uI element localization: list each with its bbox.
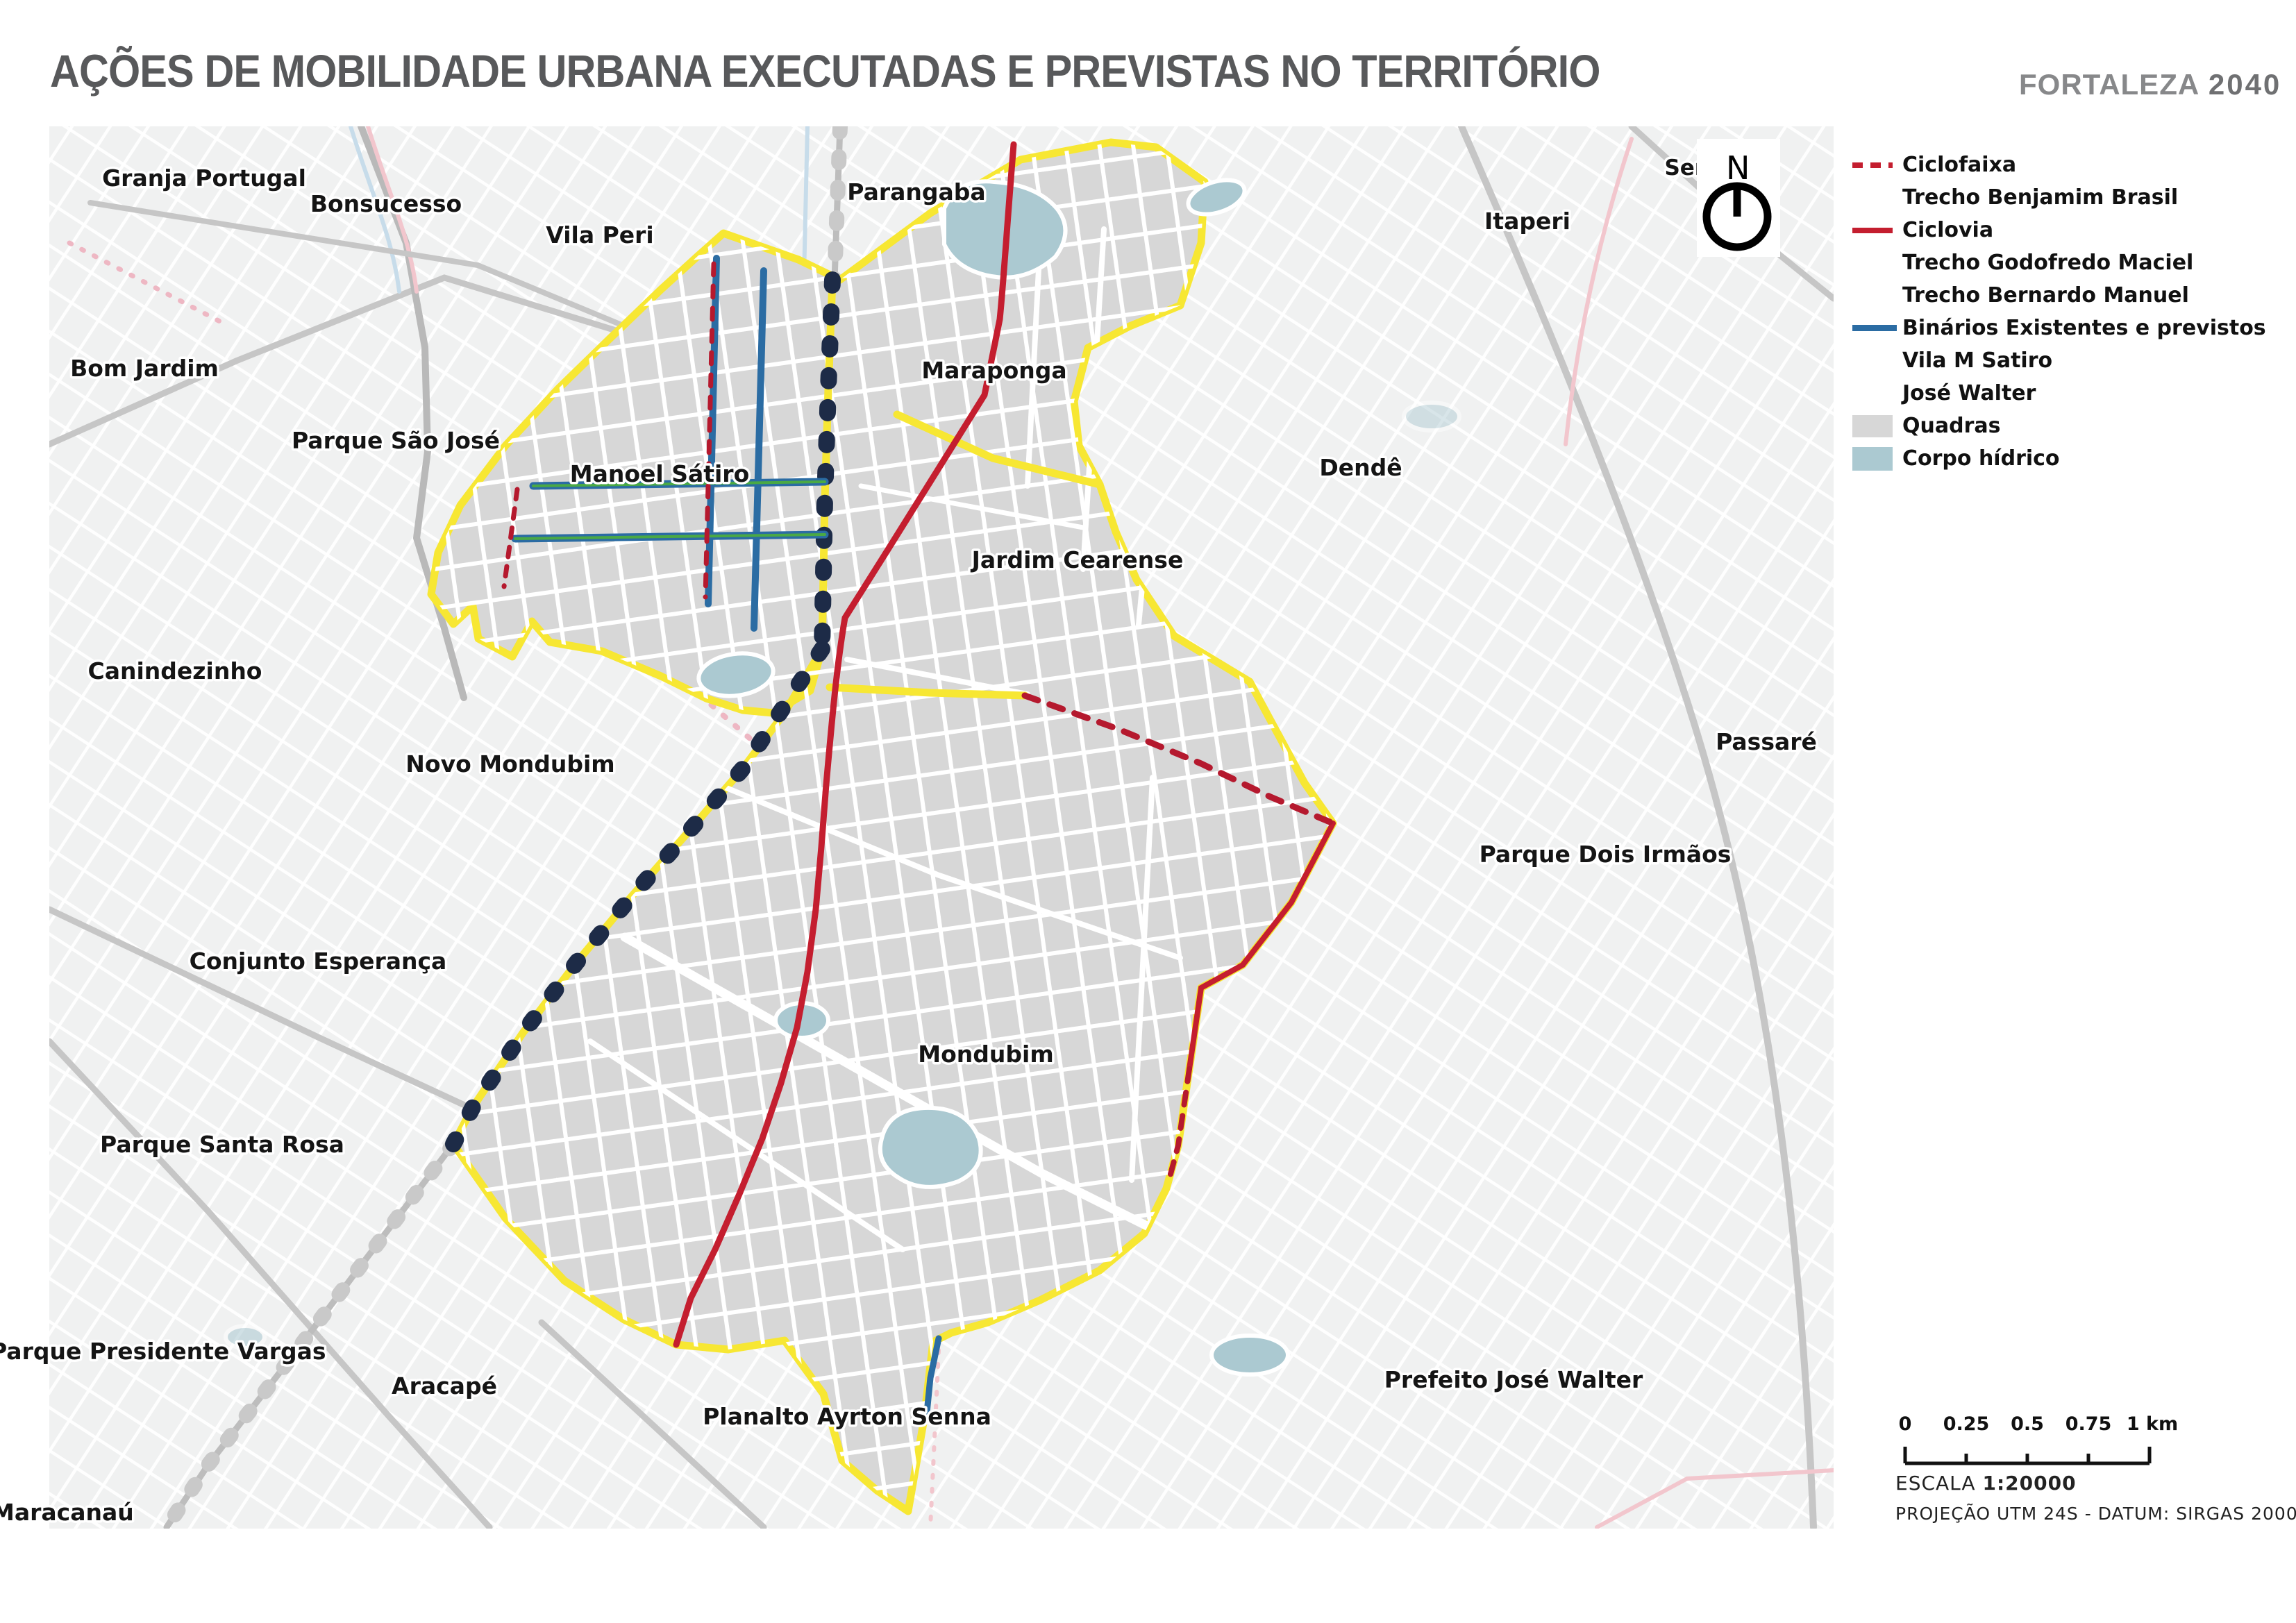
label-parque-santa-rosa: Parque Santa Rosa — [100, 1131, 344, 1158]
legend-label: Ciclovia — [1902, 218, 1993, 242]
label-passare: Passaré — [1716, 728, 1817, 755]
legend-item-corpo-hidrico: Corpo hídrico — [1852, 442, 2266, 475]
legend-item-ciclovia: Ciclovia — [1852, 214, 2266, 246]
quadras-swatch-icon — [1852, 415, 1902, 437]
label-itaperi: Itaperi — [1484, 208, 1570, 235]
label-aracape: Aracapé — [392, 1372, 497, 1399]
label-granja-portugal: Granja Portugal — [102, 165, 306, 192]
legend-item-trecho-bernardo-manuel: Trecho Bernardo Manuel — [1852, 279, 2266, 312]
legend-label: Binários Existentes e previstos — [1902, 316, 2266, 340]
corpo-hidrico-swatch-icon — [1852, 447, 1902, 471]
label-prefeito-jose-walter: Prefeito José Walter — [1384, 1366, 1643, 1393]
legend-item-binarios: Binários Existentes e previstos — [1852, 312, 2266, 344]
label-manoel-satiro: Manoel Sátiro — [570, 460, 750, 487]
label-parque-sao-jose: Parque São José — [292, 427, 500, 454]
legend-label: Ciclofaixa — [1902, 153, 2016, 177]
label-vila-peri: Vila Peri — [546, 221, 654, 249]
legend-item-trecho-benjamim-brasil: Trecho Benjamim Brasil — [1852, 181, 2266, 214]
label-parangaba: Parangaba — [847, 178, 985, 205]
legend-label: Trecho Bernardo Manuel — [1902, 283, 2189, 308]
brand-name: FORTALEZA — [2019, 68, 2199, 101]
map-base — [49, 125, 1834, 1529]
legend-label: Corpo hídrico — [1902, 446, 2060, 471]
legend-label: Vila M Satiro — [1902, 348, 2052, 373]
scale-tick-05: 0.5 — [2011, 1413, 2044, 1435]
legend-item-vila-m-satiro: Vila M Satiro — [1852, 344, 2266, 377]
scale-tick-025: 0.25 — [1943, 1413, 1990, 1435]
brand-year: 2040 — [2209, 68, 2281, 101]
scale-tick-0: 0 — [1899, 1413, 1912, 1435]
legend-label: Quadras — [1902, 414, 2000, 438]
label-planalto-ayrton-senna: Planalto Ayrton Senna — [703, 1403, 991, 1430]
legend-label: Trecho Benjamim Brasil — [1902, 185, 2178, 210]
projection-text: PROJEÇÃO UTM 24S - DATUM: SIRGAS 2000 — [1895, 1504, 2296, 1524]
legend-item-ciclofaixa: Ciclofaixa — [1852, 149, 2266, 181]
label-bom-jardim: Bom Jardim — [70, 355, 219, 382]
label-parque-dois-irmaos: Parque Dois Irmãos — [1480, 841, 1732, 868]
label-novo-mondubim: Novo Mondubim — [405, 750, 614, 777]
map-sheet: Granja Portugal Bonsucesso Vila Peri Par… — [0, 0, 2296, 1623]
label-dende: Dendê — [1319, 454, 1402, 481]
ciclofaixa-dashed-line-icon — [1852, 162, 1902, 168]
legend-item-jose-walter: José Walter — [1852, 377, 2266, 410]
brand-logo: FORTALEZA 2040 — [2019, 68, 2281, 101]
legend-label: José Walter — [1902, 381, 2036, 405]
scale-tick-1km: 1 km — [2127, 1413, 2178, 1435]
scale-tick-075: 0.75 — [2065, 1413, 2112, 1435]
label-conjunto-esperanca: Conjunto Esperança — [190, 948, 447, 975]
legend-item-trecho-godofredo-maciel: Trecho Godofredo Maciel — [1852, 246, 2266, 279]
legend-label: Trecho Godofredo Maciel — [1902, 251, 2193, 275]
label-parque-presidente-vargas: Parque Presidente Vargas — [0, 1338, 326, 1365]
north-letter: N — [1726, 149, 1750, 187]
binarios-line-icon — [1852, 325, 1902, 331]
north-compass: N — [1697, 139, 1780, 257]
escala-label: ESCALA — [1895, 1472, 1976, 1495]
escala-value: 1:20000 — [1982, 1472, 2076, 1495]
scale-text: ESCALA 1:20000 — [1895, 1472, 2077, 1495]
label-mondubim: Mondubim — [918, 1041, 1053, 1068]
label-jardim-cearense: Jardim Cearense — [971, 546, 1184, 573]
label-maracanau: Maracanaú — [0, 1499, 134, 1526]
legend-item-quadras: Quadras — [1852, 410, 2266, 442]
page-title: AÇÕES DE MOBILIDADE URBANA EXECUTADAS E … — [50, 44, 1600, 97]
label-canindezinho: Canindezinho — [88, 657, 262, 684]
legend: Ciclofaixa Trecho Benjamim Brasil Ciclov… — [1852, 149, 2266, 475]
ciclovia-line-icon — [1852, 228, 1902, 233]
label-maraponga: Maraponga — [921, 357, 1066, 384]
label-bonsucesso: Bonsucesso — [310, 190, 462, 217]
